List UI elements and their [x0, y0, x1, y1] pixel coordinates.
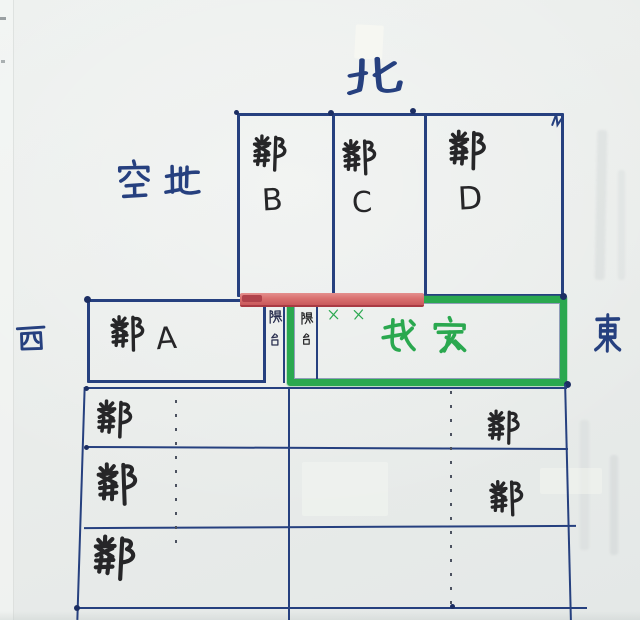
ink-dot [84, 386, 89, 391]
grid-neighbor-left-2 [93, 459, 145, 511]
paper-bleedthrough [580, 420, 589, 550]
neighbor-d-name [446, 128, 493, 175]
west-label [12, 319, 49, 356]
neighbor-b-unit: B [262, 186, 283, 216]
pen-tick [551, 114, 564, 128]
balcony-right-label [298, 311, 314, 347]
ink-dot [74, 605, 80, 611]
neighbor-c-name [339, 136, 382, 179]
paper-bleedthrough [610, 455, 618, 555]
paper-mark [0, 17, 6, 20]
paper-bleedthrough [618, 170, 625, 280]
paper-bottom-edge [0, 611, 640, 620]
dashed-line-right [450, 391, 452, 612]
ink-dot [560, 293, 567, 300]
red-boundary-strip [240, 293, 424, 307]
grid-neighbor-left-1 [93, 397, 139, 443]
correction-tape-patch [540, 468, 602, 494]
grid-vline-left [76, 387, 85, 620]
hand-drawn-map: B C D A [0, 0, 640, 620]
grid-line-bottom [76, 607, 587, 609]
paper-left-edge [0, 0, 14, 620]
neighbor-d-unit: D [458, 184, 482, 216]
paper-mark [1, 60, 5, 63]
rejected-x-marks [326, 307, 366, 322]
neighbor-a-label: A [108, 312, 177, 355]
grid-neighbor-left-3 [89, 532, 144, 587]
box-divider [424, 116, 427, 294]
north-label [338, 52, 410, 102]
grid-neighbor-right-2 [486, 477, 529, 520]
ink-dot [450, 604, 455, 609]
box-divider [332, 116, 335, 294]
grid-vline-right [564, 384, 572, 620]
red-strip-dark-end [242, 295, 262, 302]
balcony-left-label [266, 309, 283, 348]
correction-tape-patch [302, 462, 388, 516]
grid-line-row2 [84, 525, 576, 529]
ink-dot [410, 108, 416, 114]
ink-dot [84, 445, 89, 450]
grid-vline-middle [288, 387, 290, 620]
my-home-label [376, 314, 473, 361]
my-home-box [287, 296, 567, 386]
neighbor-b-name [249, 132, 292, 175]
grid-neighbor-right-1 [485, 408, 526, 449]
neighbor-c-unit: C [352, 188, 372, 217]
grid-line-top [85, 387, 567, 389]
east-label [588, 310, 626, 357]
ink-dot [328, 110, 334, 116]
ink-dot [234, 110, 239, 115]
dashed-line-left [175, 400, 177, 552]
ink-dot [84, 296, 91, 303]
paper-bleedthrough [595, 130, 608, 280]
open-land-label [112, 157, 205, 203]
